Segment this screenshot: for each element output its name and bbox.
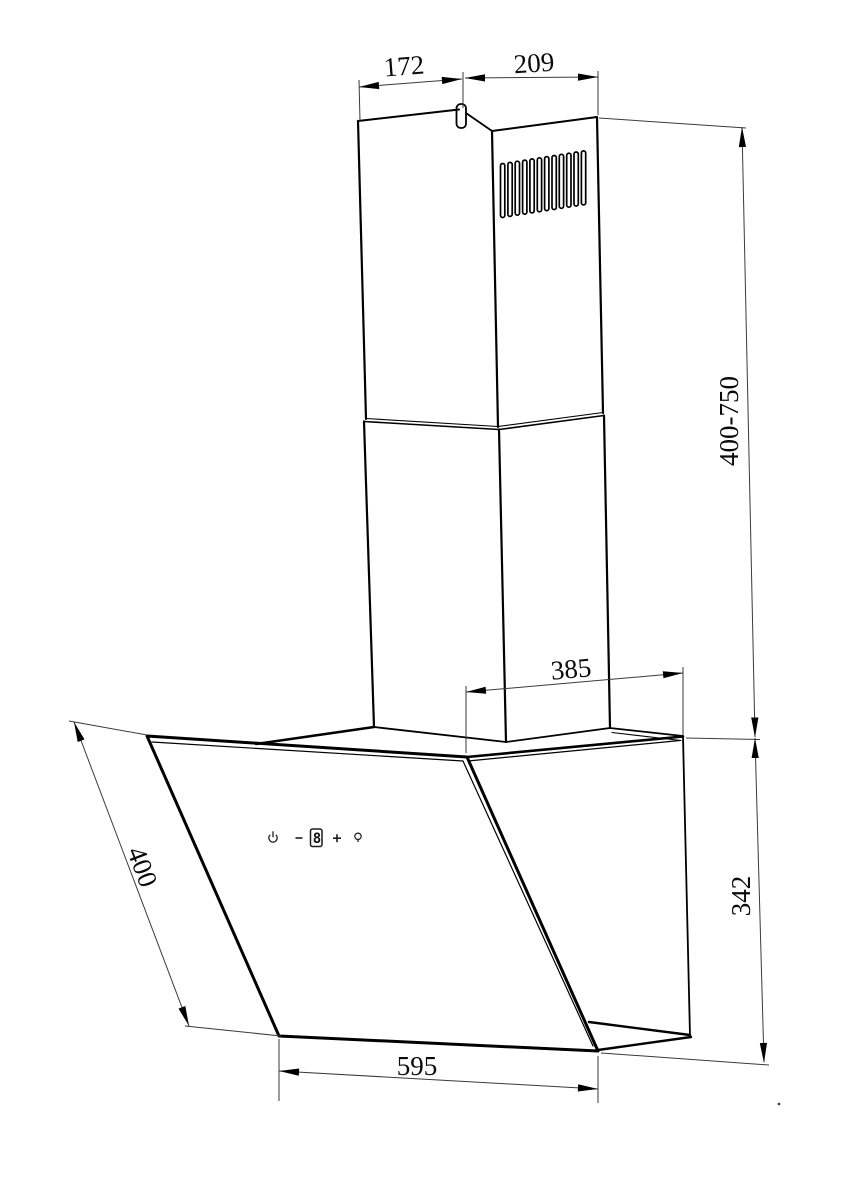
dim-label-595: 595 [397,1051,438,1081]
chimney-upper-section [358,104,603,427]
dim-label-342: 342 [726,876,756,917]
dim-label-400-750: 400-750 [714,376,744,466]
dim-chimney-height-range: 400-750 [599,118,758,738]
speed-display: 8 [311,829,323,847]
speed-display-value: 8 [313,831,321,847]
dim-label-385: 385 [550,652,593,685]
technical-drawing-page: 8 [0,0,849,1200]
technical-drawing: 8 [0,0,849,1200]
dim-label-400: 400 [121,843,163,891]
hood-body [147,727,691,1051]
dim-chimney-top-right-width: 209 [465,47,598,115]
hood-top-left-edge [256,727,374,744]
dim-label-209: 209 [513,47,555,80]
stray-dot [778,1103,781,1106]
dim-label-172: 172 [383,49,426,82]
hood-top-back-edge-right [610,728,683,736]
chimney-lower-section [364,415,610,742]
